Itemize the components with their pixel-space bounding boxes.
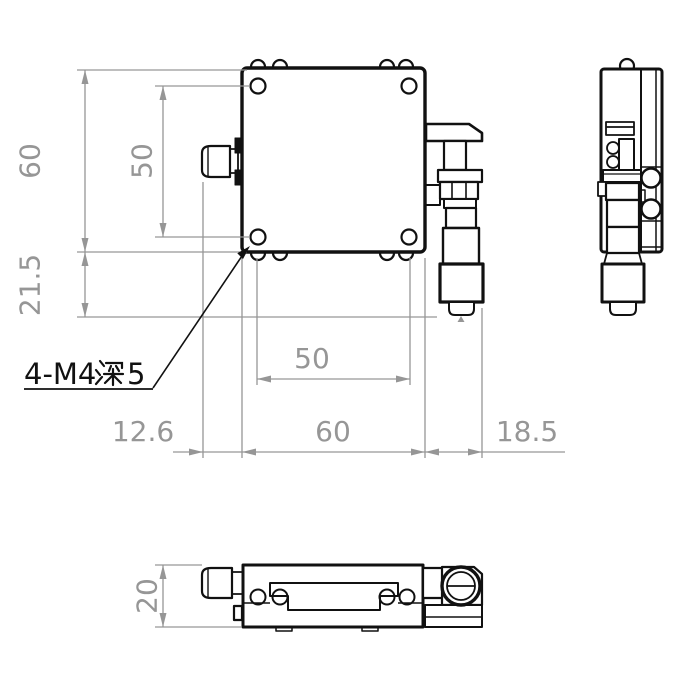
stage-body xyxy=(242,68,425,252)
micrometer-bracket xyxy=(426,124,482,141)
thread-annotation-suffix: 5 xyxy=(127,357,145,391)
clamp-block xyxy=(425,185,440,205)
bottom-knob xyxy=(202,568,243,620)
dim-hole-pitch-horizontal: 50 xyxy=(294,342,330,375)
leader-line xyxy=(153,250,246,388)
dim-hole-pitch-vertical: 50 xyxy=(126,143,159,179)
left-knob xyxy=(202,138,243,185)
micrometer-tip-marker xyxy=(458,316,465,322)
micrometer-sleeve xyxy=(443,228,479,264)
dim-micrometer-protrusion-bottom: 21.5 xyxy=(14,254,47,316)
dim-micrometer-protrusion-side: 18.5 xyxy=(496,415,558,448)
micrometer-barrel xyxy=(446,208,476,228)
bottom-view xyxy=(202,565,482,631)
dim-knob-protrusion: 12.6 xyxy=(112,415,174,448)
kanji-depth-glyph xyxy=(96,361,123,385)
drawing-canvas: 60 50 21.5 50 12.6 60 18.5 20 4-M4 5 xyxy=(0,0,700,700)
front-view xyxy=(202,60,483,315)
thread-annotation-prefix: 4-M4 xyxy=(24,357,96,391)
dim-body-width: 60 xyxy=(315,415,351,448)
thread-annotation: 4-M4 5 xyxy=(24,246,250,391)
side-view xyxy=(598,59,662,315)
micrometer-flange xyxy=(438,170,482,182)
micrometer-thimble-side xyxy=(602,264,644,302)
engineering-drawing: 60 50 21.5 50 12.6 60 18.5 20 4-M4 5 xyxy=(0,0,700,700)
micrometer-spindle xyxy=(444,141,466,170)
dim-front-height: 60 xyxy=(14,143,47,179)
micrometer-end-cap-side xyxy=(610,302,636,315)
dim-stage-thickness: 20 xyxy=(131,578,164,614)
micrometer-thimble xyxy=(440,264,483,302)
micrometer-front xyxy=(425,124,483,315)
micrometer-lock-nut xyxy=(440,182,478,199)
micrometer-end-cap xyxy=(449,302,474,315)
micrometer-bottom xyxy=(423,567,482,627)
